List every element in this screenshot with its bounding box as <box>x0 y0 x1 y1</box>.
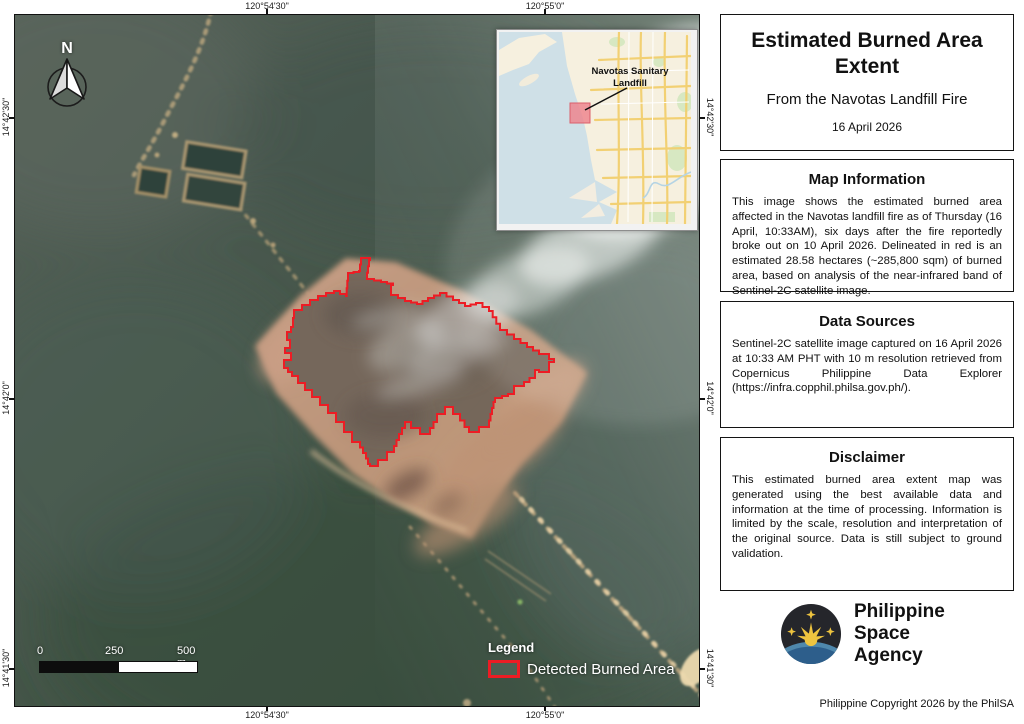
philsa-logo-icon <box>780 603 842 665</box>
section-heading: Map Information <box>721 171 1013 188</box>
section-heading: Data Sources <box>721 313 1013 330</box>
legend: Legend Detected Burned Area <box>488 640 675 678</box>
section-body: This image shows the estimated burned ar… <box>732 195 1002 299</box>
map-date: 16 April 2026 <box>733 120 1001 134</box>
copyright-notice: Philippine Copyright 2026 by the PhilSA <box>720 698 1014 710</box>
map-information-box: Map Information This image shows the est… <box>720 159 1014 292</box>
inset-label-line1: Navotas Sanitary <box>591 66 669 77</box>
agency-name: Philippine Space Agency <box>854 601 945 667</box>
coord-top-2: 120°55'0" <box>500 1 590 11</box>
map-sheet: N 0 250 500 m Legend Detected Burned Are… <box>0 0 1024 724</box>
page-title: Estimated Burned Area Extent <box>733 28 1001 79</box>
burned-area-swatch <box>488 660 520 678</box>
north-arrow: N <box>41 37 93 117</box>
inset-landfill-marker <box>570 103 590 123</box>
section-body: This estimated burned area extent map wa… <box>732 473 1002 562</box>
data-sources-box: Data Sources Sentinel-2C satellite image… <box>720 301 1014 428</box>
coord-top-1: 120°54'30" <box>222 1 312 11</box>
inset-locator-map: Navotas Sanitary Landfill <box>496 29 698 231</box>
coord-right-1: 14°42'30" <box>705 98 715 137</box>
philsa-branding: Philippine Space Agency <box>780 601 945 667</box>
coord-left-1: 14°42'30" <box>1 98 11 137</box>
page-subtitle: From the Navotas Landfill Fire <box>733 91 1001 108</box>
scale-bar: 0 250 500 m <box>37 645 207 677</box>
title-box: Estimated Burned Area Extent From the Na… <box>720 14 1014 151</box>
coord-bottom-2: 120°55'0" <box>500 710 590 720</box>
section-body: Sentinel-2C satellite image captured on … <box>732 337 1002 396</box>
scale-label-0: 0 <box>37 645 43 657</box>
inset-label-line2: Landfill <box>613 78 647 89</box>
coord-right-3: 14°41'30" <box>705 649 715 688</box>
legend-title: Legend <box>488 640 675 655</box>
satellite-map: N 0 250 500 m Legend Detected Burned Are… <box>14 14 700 707</box>
coord-right-2: 14°42'0" <box>705 381 715 415</box>
scale-bar-graphic <box>39 661 198 673</box>
section-heading: Disclaimer <box>721 449 1013 466</box>
info-panel: Estimated Burned Area Extent From the Na… <box>720 0 1016 724</box>
scale-label-250: 250 <box>105 645 123 657</box>
coord-left-2: 14°42'0" <box>1 381 11 415</box>
legend-item-label: Detected Burned Area <box>527 661 675 678</box>
coord-bottom-1: 120°54'30" <box>222 710 312 720</box>
coord-left-3: 14°41'30" <box>1 649 11 688</box>
north-label: N <box>61 40 73 57</box>
disclaimer-box: Disclaimer This estimated burned area ex… <box>720 437 1014 591</box>
